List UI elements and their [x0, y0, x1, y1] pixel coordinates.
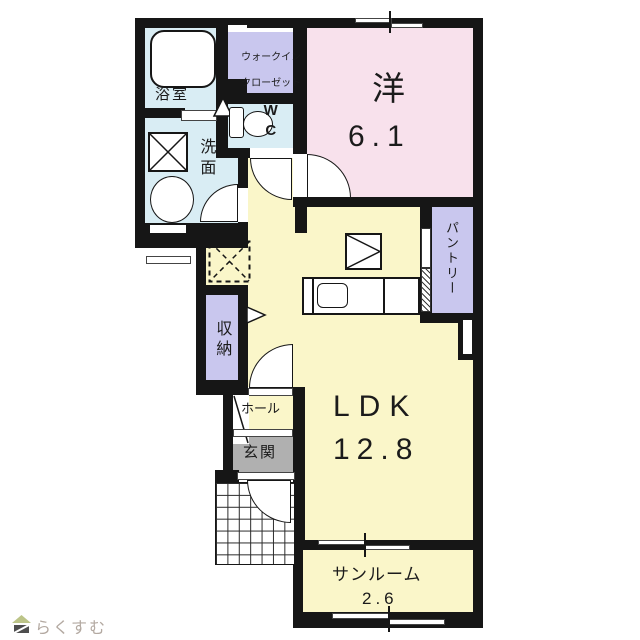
wall: [238, 158, 248, 188]
window-tick: [388, 606, 390, 632]
closet-door-opening: [228, 25, 247, 32]
bathroom-label: 浴室: [155, 86, 189, 103]
wall: [293, 197, 483, 207]
pantry-sliding-door: [421, 228, 431, 268]
wc-label: WC: [262, 102, 279, 142]
wall: [135, 18, 483, 28]
walk-in-closet-label-line1: ウォークイン: [241, 52, 301, 63]
washbasin: [150, 176, 194, 223]
washroom-label: 洗面: [196, 138, 214, 180]
window: [365, 545, 410, 550]
pantry-sliding-door-hatch: [421, 268, 431, 312]
wall: [216, 148, 250, 158]
refrigerator-icon: [345, 233, 382, 270]
window: [391, 23, 423, 28]
equipment-space-dashed-icon: [208, 240, 251, 283]
toilet-tank: [229, 107, 244, 138]
corridor-area2: [248, 207, 295, 233]
ldk-size: 12.8: [333, 433, 419, 468]
floor-plan: 浴室 ウォークイン クローゼット WC 洗面 洋 6.1 パントリー 収納 ホー…: [0, 0, 640, 640]
sunroom-label: サンルーム: [332, 565, 422, 585]
western-room-label: 洋: [372, 70, 405, 108]
walk-in-closet-label-line2: クローゼット: [241, 78, 301, 89]
logo-text: らくすむ: [35, 614, 107, 638]
window: [389, 619, 445, 625]
sunroom-size: 2.6: [362, 589, 398, 609]
window: [332, 613, 389, 619]
counter-divider: [312, 278, 314, 314]
front-door-sill: [237, 472, 295, 480]
window: [463, 320, 472, 354]
kitchen-sink: [317, 283, 348, 308]
counter-divider: [383, 278, 385, 314]
bathtub: [150, 30, 216, 88]
window: [355, 18, 392, 23]
wall: [295, 207, 307, 233]
entrance-label: 玄関: [243, 444, 277, 461]
storage-label: 収納: [212, 320, 230, 360]
wall: [135, 18, 145, 248]
washing-machine-icon: [148, 132, 188, 172]
wall: [215, 470, 239, 482]
hall-door-sill: [248, 388, 293, 396]
ldk-label: LDK: [333, 390, 418, 425]
logo-house-icon: [12, 614, 32, 634]
wall: [223, 390, 233, 482]
entrance-step: [233, 429, 293, 437]
wall: [143, 108, 185, 118]
kitchen-area-top: [307, 207, 420, 233]
window-tick: [364, 533, 366, 557]
western-room-size: 6.1: [348, 120, 411, 155]
pantry-label: パントリー: [443, 221, 458, 296]
wall: [216, 18, 228, 158]
window: [318, 540, 365, 545]
hall-label: ホール: [241, 402, 280, 417]
exterior-step: [146, 256, 191, 264]
storage-door-icon: [246, 305, 268, 325]
window-tick: [389, 11, 391, 33]
window: [150, 225, 186, 233]
